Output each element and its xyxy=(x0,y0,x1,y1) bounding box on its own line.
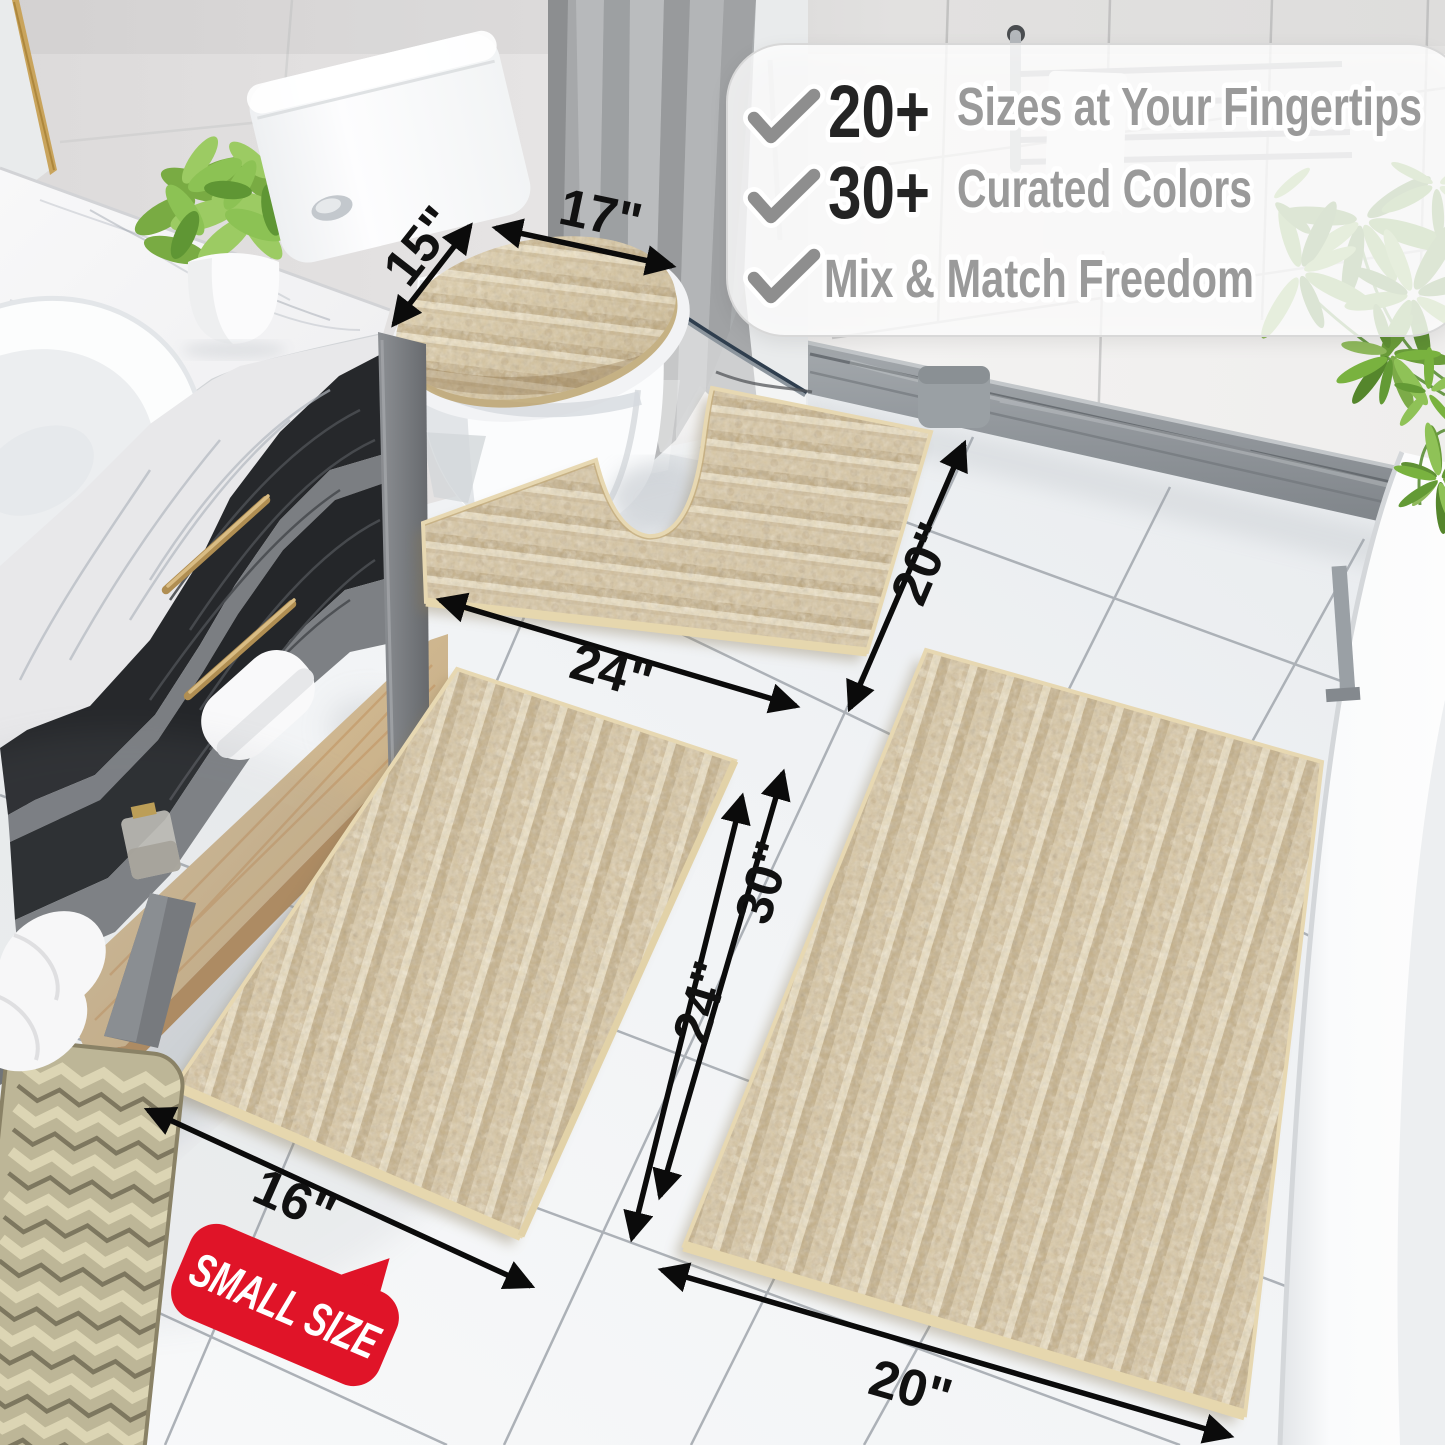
svg-text:Curated Colors: Curated Colors xyxy=(957,159,1252,219)
svg-text:Mix & Match Freedom: Mix & Match Freedom xyxy=(824,249,1254,309)
svg-text:Sizes at Your Fingertips: Sizes at Your Fingertips xyxy=(957,77,1422,137)
svg-text:20+: 20+ xyxy=(828,70,930,153)
svg-text:30+: 30+ xyxy=(828,151,930,234)
